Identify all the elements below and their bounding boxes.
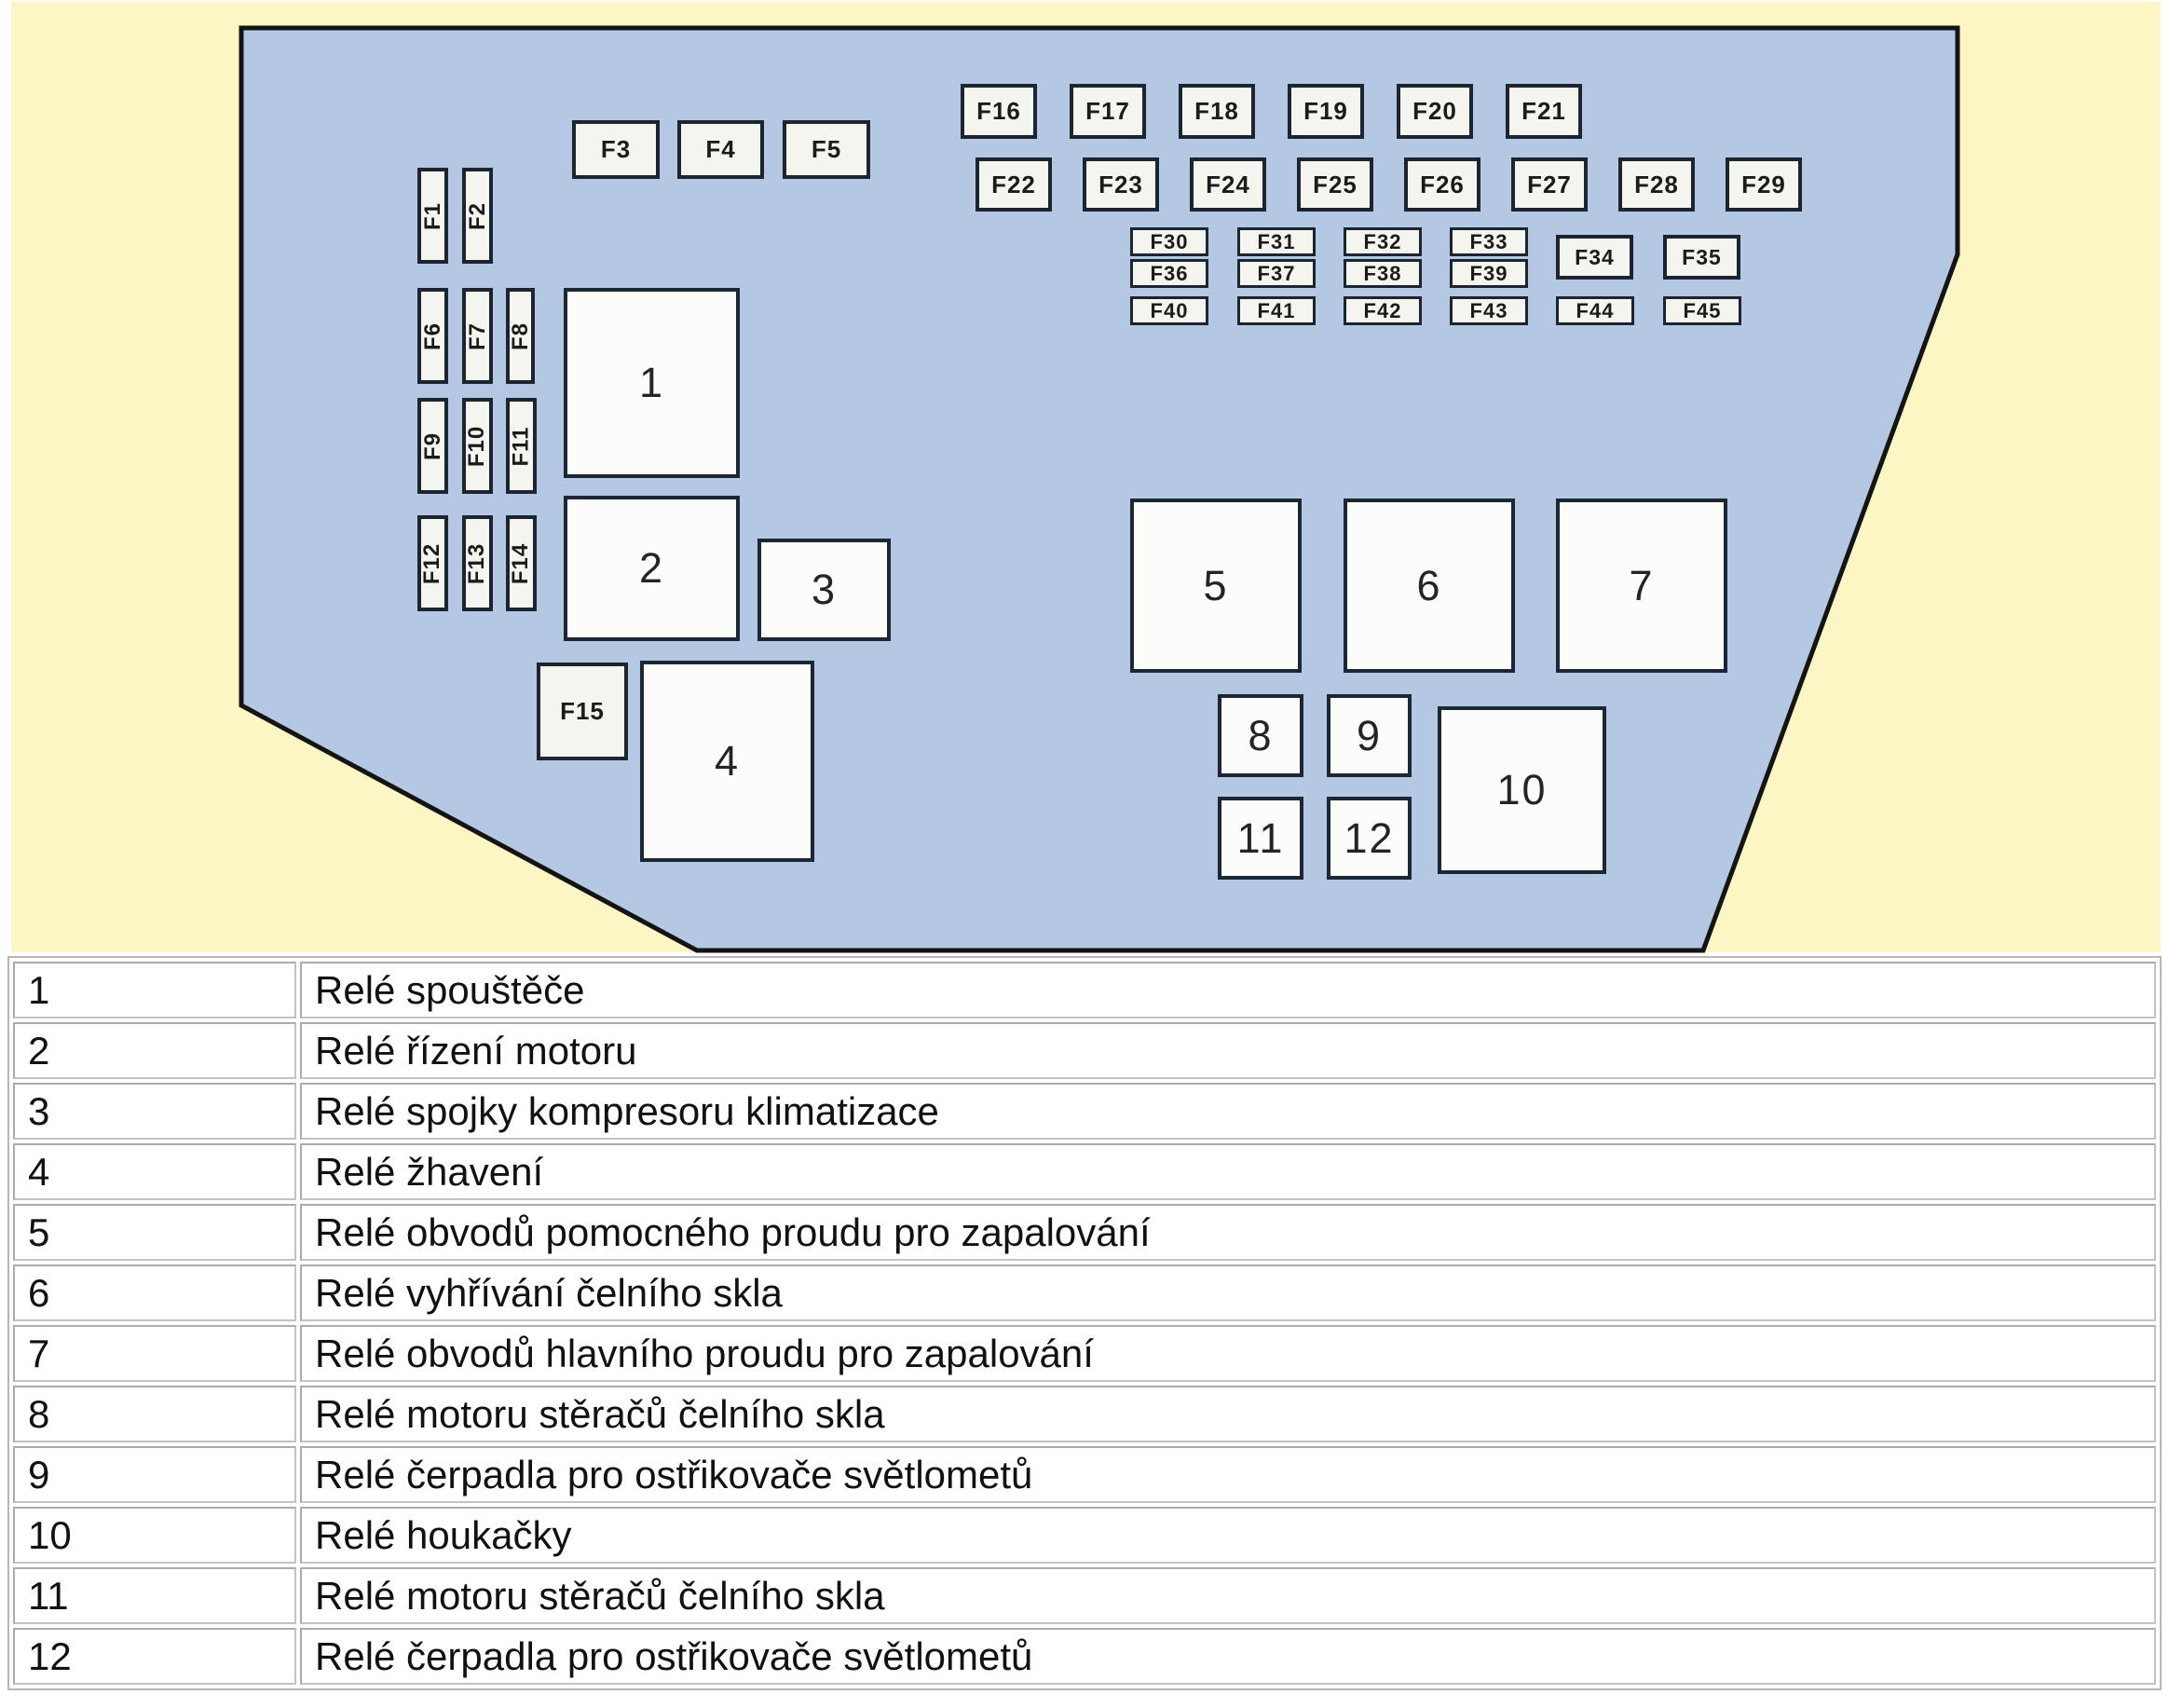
fuse-label: F44 [1576,299,1615,323]
relay-box-9: 9 [1327,694,1412,777]
fuse-F25: F25 [1297,157,1373,212]
relay-number: 4 [715,737,740,786]
legend-number-cell: 2 [13,1022,296,1079]
relay-box-6: 6 [1344,499,1515,673]
fuse-label: F25 [1313,171,1358,199]
legend-row: 10Relé houkačky [13,1507,2156,1564]
fuse-F4: F4 [677,120,764,179]
fuse-label: F32 [1364,230,1402,254]
diagram-area [11,2,2161,952]
fuse-label: F22 [991,171,1036,199]
fuse-label: F13 [465,542,491,583]
fuse-label: F4 [705,135,735,164]
fuse-F20: F20 [1397,84,1473,139]
fuse-F11: F11 [506,398,537,494]
fuse-F12: F12 [417,515,448,611]
fuse-label: F40 [1151,299,1189,323]
relay-number: 10 [1496,766,1547,814]
fuse-F7: F7 [462,288,493,384]
fuse-F9: F9 [417,398,448,494]
fuse-label: F23 [1098,171,1143,199]
fuse-label: F43 [1470,299,1508,323]
relay-number: 9 [1357,712,1382,760]
legend-number-cell: 10 [13,1507,296,1564]
fuse-F40: F40 [1130,296,1208,325]
fuse-F30: F30 [1130,227,1208,256]
legend-text-cell: Relé čerpadla pro ostřikovače světlometů [300,1446,2156,1503]
relay-number: 11 [1237,814,1285,863]
fuse-label: F12 [420,542,446,583]
fuse-label: F38 [1364,262,1402,286]
fuse-label: F33 [1470,230,1508,254]
legend-text-cell: Relé obvodů hlavního proudu pro zapalová… [300,1325,2156,1382]
fuse-F34: F34 [1556,235,1633,280]
legend-text-cell: Relé vyhřívání čelního skla [300,1264,2156,1321]
legend-row: 12Relé čerpadla pro ostřikovače světlome… [13,1628,2156,1685]
legend-text-cell: Relé řízení motoru [300,1022,2156,1079]
legend-text-cell: Relé čerpadla pro ostřikovače světlometů [300,1628,2156,1685]
relay-number: 3 [812,566,837,614]
fuse-F23: F23 [1083,157,1159,212]
fuse-F14: F14 [506,515,537,611]
fuse-label: F17 [1085,97,1130,126]
fuse-label: F39 [1470,262,1508,286]
fuse-F21: F21 [1506,84,1582,139]
relay-number: 12 [1344,814,1394,863]
legend-text-cell: Relé spouštěče [300,962,2156,1018]
relay-number: 8 [1248,712,1273,760]
relay-box-10: 10 [1438,706,1606,874]
legend-number-cell: 7 [13,1325,296,1382]
fuse-label: F21 [1521,97,1566,126]
relay-number: 1 [639,359,664,407]
relay-box-2: 2 [564,496,740,641]
legend-row: 7Relé obvodů hlavního proudu pro zapalov… [13,1325,2156,1382]
legend-row: 6Relé vyhřívání čelního skla [13,1264,2156,1321]
fuse-label: F26 [1420,171,1465,199]
legend-number-cell: 12 [13,1628,296,1685]
legend-row: 1Relé spouštěče [13,962,2156,1018]
fuse-label: F29 [1741,171,1786,199]
legend-row: 3Relé spojky kompresoru klimatizace [13,1083,2156,1140]
fuse-label: F35 [1682,245,1722,270]
legend-text-cell: Relé spojky kompresoru klimatizace [300,1083,2156,1140]
fuse-F29: F29 [1726,157,1802,212]
fuse-F28: F28 [1618,157,1695,212]
fuse-label: F11 [509,426,535,466]
relay-number: 6 [1416,562,1441,610]
fuse-F39: F39 [1450,259,1528,288]
fuse-label: F6 [420,321,446,349]
legend-row: 4Relé žhavení [13,1143,2156,1200]
fuse-label: F34 [1575,245,1615,270]
fuse-F33: F33 [1450,227,1528,256]
legend-number-cell: 11 [13,1567,296,1624]
fuse-F35: F35 [1663,235,1740,280]
legend-row: 5Relé obvodů pomocného proudu pro zapalo… [13,1204,2156,1261]
fuse-F26: F26 [1404,157,1480,212]
fuse-label: F10 [465,425,491,466]
relay-box-1: 1 [564,288,740,478]
fuse-label: F14 [509,542,535,583]
relay-box-8: 8 [1218,694,1303,777]
fuse-F38: F38 [1344,259,1422,288]
fuse-F32: F32 [1344,227,1422,256]
legend-row: 9Relé čerpadla pro ostřikovače světlomet… [13,1446,2156,1503]
legend-number-cell: 6 [13,1264,296,1321]
relay-number: 5 [1203,562,1228,610]
relay-box-7: 7 [1556,499,1727,673]
fuse-label: F24 [1206,171,1250,199]
fuse-label: F41 [1258,299,1296,323]
legend-text-cell: Relé motoru stěračů čelního skla [300,1567,2156,1624]
relay-box-12: 12 [1327,797,1412,880]
fuse-F6: F6 [417,288,448,384]
relay-box-3: 3 [757,539,891,641]
legend-number-cell: 9 [13,1446,296,1503]
legend-row: 2Relé řízení motoru [13,1022,2156,1079]
fuse-label: F2 [465,201,491,229]
fuse-label: F18 [1194,97,1239,126]
fuse-F44: F44 [1556,296,1634,325]
fuse-label: F3 [601,135,631,164]
page-root: F1F2F3F4F5F6F7F8F9F10F11F12F13F14F15F16F… [0,0,2183,1708]
fuse-F1: F1 [417,168,448,264]
legend-text-cell: Relé houkačky [300,1507,2156,1564]
relay-number: 7 [1629,562,1654,610]
fuse-F45: F45 [1663,296,1741,325]
fuse-F19: F19 [1288,84,1364,139]
legend-number-cell: 8 [13,1386,296,1442]
fuse-label: F9 [420,431,446,459]
relay-number: 2 [639,544,664,593]
legend-number-cell: 5 [13,1204,296,1261]
fuse-label: F16 [976,97,1021,126]
fuse-F5: F5 [783,120,870,179]
fuse-F22: F22 [976,157,1052,212]
relay-box-4: 4 [640,661,814,862]
fuse-F8: F8 [506,288,535,384]
fuse-label: F45 [1684,299,1722,323]
fuse-F43: F43 [1450,296,1528,325]
legend-number-cell: 4 [13,1143,296,1200]
fuse-F27: F27 [1511,157,1588,212]
fuse-label: F19 [1303,97,1348,126]
fuse-label: F36 [1151,262,1189,286]
fuse-F10: F10 [462,398,493,494]
fuse-F37: F37 [1237,259,1316,288]
legend-text-cell: Relé motoru stěračů čelního skla [300,1386,2156,1442]
fuse-label: F42 [1364,299,1402,323]
fuse-F17: F17 [1070,84,1146,139]
fuse-label: F1 [420,201,446,229]
fuse-label: F31 [1258,230,1296,254]
fuse-F42: F42 [1344,296,1422,325]
fuse-label: F7 [465,321,491,349]
legend-number-cell: 3 [13,1083,296,1140]
fuse-F16: F16 [961,84,1037,139]
fuse-F41: F41 [1237,296,1316,325]
fuse-F24: F24 [1190,157,1266,212]
fuse-F13: F13 [462,515,493,611]
fuse-label: F5 [812,135,841,164]
legend-table: 1Relé spouštěče2Relé řízení motoru3Relé … [7,956,2162,1690]
fuse-label: F15 [560,697,605,726]
legend-text-cell: Relé obvodů pomocného proudu pro zapalov… [300,1204,2156,1261]
fuse-label: F20 [1412,97,1457,126]
fuse-F31: F31 [1237,227,1316,256]
fuse-label: F28 [1634,171,1679,199]
fuse-F18: F18 [1179,84,1255,139]
legend-row: 11Relé motoru stěračů čelního skla [13,1567,2156,1624]
fuse-F3: F3 [572,120,660,179]
fuse-label: F8 [508,321,534,349]
relay-box-11: 11 [1218,797,1303,880]
legend-text-cell: Relé žhavení [300,1143,2156,1200]
legend-number-cell: 1 [13,962,296,1018]
fuse-label: F27 [1527,171,1572,199]
fuse-F36: F36 [1130,259,1208,288]
legend-row: 8Relé motoru stěračů čelního skla [13,1386,2156,1442]
fuse-label: F30 [1151,230,1189,254]
fuse-F2: F2 [462,168,493,264]
fuse-label: F37 [1258,262,1296,286]
fuse-F15: F15 [537,663,628,760]
relay-box-5: 5 [1130,499,1302,673]
